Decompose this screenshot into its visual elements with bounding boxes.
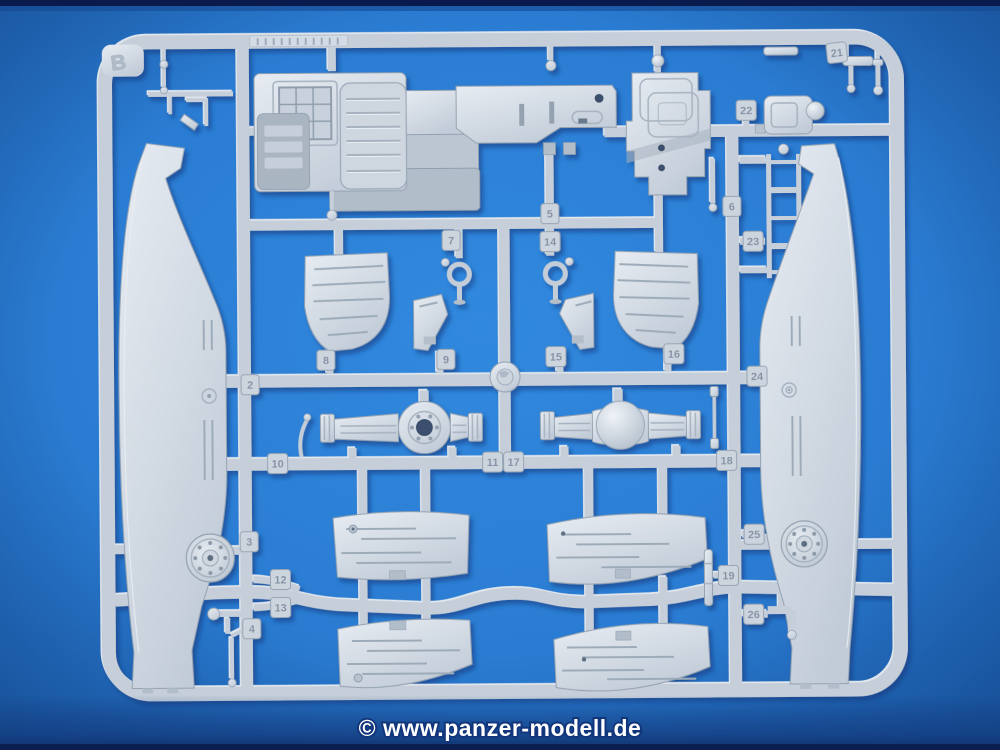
svg-text:25: 25 bbox=[748, 529, 760, 541]
svg-text:26: 26 bbox=[748, 609, 760, 621]
fender-top-left-part bbox=[333, 511, 469, 580]
svg-text:19: 19 bbox=[722, 570, 734, 582]
part-number-tag: 15 bbox=[546, 347, 566, 367]
part-number-tag: 17 bbox=[504, 452, 524, 472]
part-number-tag: 25 bbox=[744, 524, 764, 544]
svg-text:3: 3 bbox=[246, 537, 252, 549]
part-number-tag: 13 bbox=[271, 597, 291, 617]
part-number-tag: 6 bbox=[723, 196, 741, 216]
part-number-tag: 22 bbox=[736, 100, 756, 120]
part-number-tag: 10 bbox=[268, 453, 288, 473]
rod-part-19 bbox=[704, 550, 712, 606]
watermark-text: © www.panzer-modell.de bbox=[359, 715, 642, 741]
svg-text:4: 4 bbox=[249, 624, 256, 636]
brake-drum-part-25 bbox=[781, 521, 827, 567]
svg-text:12: 12 bbox=[274, 574, 286, 586]
svg-text:22: 22 bbox=[740, 105, 752, 117]
part-number-tag: 14 bbox=[540, 232, 560, 252]
sprue-letter: B bbox=[109, 51, 127, 76]
injection-hub bbox=[490, 362, 520, 392]
rod-on-rail-part bbox=[764, 47, 798, 55]
part-number-tag: 9 bbox=[437, 349, 455, 369]
svg-text:24: 24 bbox=[751, 371, 764, 383]
svg-text:18: 18 bbox=[720, 455, 732, 467]
pin-ball bbox=[709, 203, 717, 211]
svg-text:5: 5 bbox=[547, 209, 553, 221]
svg-text:16: 16 bbox=[668, 349, 680, 361]
mold-marking bbox=[250, 35, 348, 47]
top-shade-fade bbox=[0, 6, 1000, 11]
svg-text:15: 15 bbox=[550, 352, 562, 364]
teardrop-pin-part bbox=[652, 55, 664, 67]
svg-text:17: 17 bbox=[507, 457, 519, 469]
instrument-panel-part bbox=[626, 73, 711, 196]
part-number-tag: 23 bbox=[743, 231, 763, 251]
part-number-tag: 7 bbox=[442, 230, 460, 250]
part-number-tag: 11 bbox=[483, 452, 503, 472]
steering-lever-ball bbox=[304, 414, 311, 421]
brake-drum-part-3 bbox=[186, 534, 234, 582]
part-number-tag: 4 bbox=[243, 619, 261, 639]
svg-text:21: 21 bbox=[830, 47, 844, 60]
part-number-tag: 19 bbox=[718, 565, 738, 585]
svg-text:14: 14 bbox=[544, 237, 557, 249]
svg-text:8: 8 bbox=[323, 355, 329, 367]
part-number-tag: 26 bbox=[744, 604, 764, 624]
part-number-tag: 18 bbox=[717, 450, 737, 470]
top-shade bbox=[0, 0, 1000, 6]
part-number-tag: 24 bbox=[747, 366, 767, 386]
svg-text:11: 11 bbox=[487, 457, 499, 469]
svg-text:13: 13 bbox=[274, 602, 286, 614]
svg-text:7: 7 bbox=[448, 235, 454, 247]
part-number-tag: 5 bbox=[541, 204, 559, 224]
bottom-edge bbox=[0, 744, 1000, 750]
svg-text:23: 23 bbox=[747, 236, 759, 248]
svg-text:10: 10 bbox=[271, 459, 283, 471]
svg-text:9: 9 bbox=[443, 354, 449, 366]
sprue-photo: B 2 3 4 5 6 7 8 9 10 11 17 12 13 14 15 1… bbox=[0, 0, 1000, 750]
part-number-tag: 12 bbox=[270, 569, 290, 589]
part-number-tag: 8 bbox=[317, 350, 335, 370]
part-number-tag: 16 bbox=[664, 344, 684, 364]
svg-text:2: 2 bbox=[247, 380, 253, 392]
svg-text:6: 6 bbox=[729, 201, 735, 213]
part-number-tag: 21 bbox=[826, 42, 848, 64]
ball-pin-part bbox=[546, 61, 556, 71]
part-number-tag: 3 bbox=[240, 532, 258, 552]
part-number-tag: 2 bbox=[241, 375, 259, 395]
